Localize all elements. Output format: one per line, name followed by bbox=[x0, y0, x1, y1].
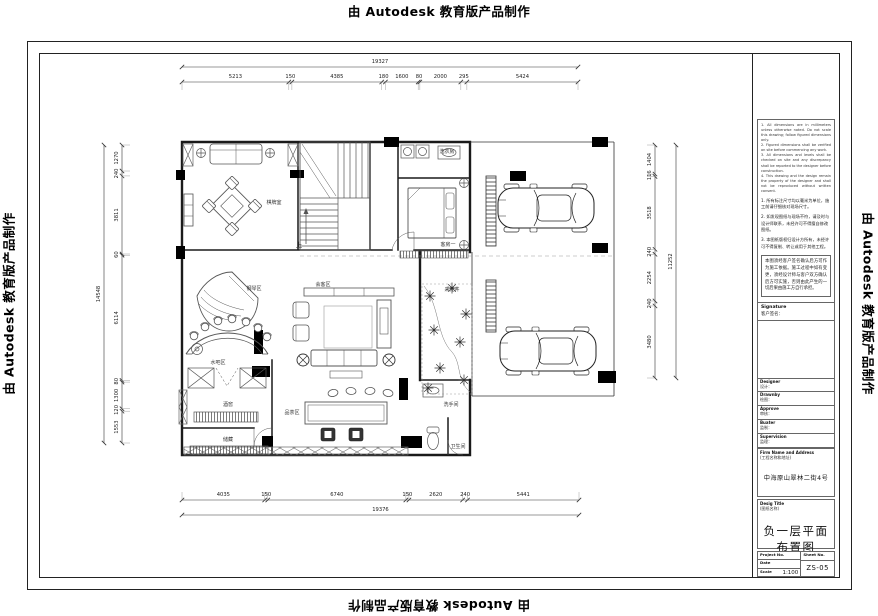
room-label-kefang: 客房一 bbox=[440, 241, 455, 248]
date-row: Date bbox=[758, 560, 800, 568]
field-buater-cn: 监制： bbox=[760, 426, 832, 431]
dim-label: 1404 bbox=[647, 152, 653, 166]
room-label-xiyifang: 洗衣房 bbox=[439, 148, 454, 155]
drawing-title: 负一层平面布置图 bbox=[760, 523, 832, 555]
dim-label: 14548 bbox=[96, 286, 102, 303]
dim-label: 150 bbox=[261, 492, 271, 498]
scale-value: 1:100 bbox=[782, 570, 798, 576]
dim-label: 150 bbox=[402, 492, 412, 498]
field-supervision-cn: 监理： bbox=[760, 440, 832, 445]
notes-box: 1. All dimensions are in millimeters unl… bbox=[757, 119, 835, 379]
dim-label: 1553 bbox=[114, 420, 120, 433]
dim-label: 19327 bbox=[372, 59, 389, 65]
dim-label: 60 bbox=[114, 251, 120, 258]
room-label-gangqin: 钢琴区 bbox=[246, 285, 261, 292]
field-designer: Designer 设计： bbox=[757, 378, 835, 392]
sheet-no-row: Sheet No. bbox=[801, 552, 834, 561]
dim-label: 5213 bbox=[229, 74, 242, 80]
room-label-caiguang: 采光井 bbox=[444, 286, 459, 293]
room-label-weishengjian: 卫生间 bbox=[450, 443, 465, 450]
dim-label: 150 bbox=[285, 74, 295, 80]
dim-label: 116 bbox=[647, 170, 653, 180]
room-label-up: 上 bbox=[296, 240, 303, 249]
dim-label: 1270 bbox=[114, 151, 120, 164]
field-designer-cn: 设计： bbox=[760, 385, 832, 390]
dim-label: 2254 bbox=[647, 270, 653, 284]
walls bbox=[182, 142, 470, 455]
guest-bedroom-furniture bbox=[392, 179, 469, 259]
signature-block: Signature 客户签名： bbox=[758, 302, 834, 321]
note-line-cn: 3. 本图纸版权归设计方所有，未经许可不得复制、转让或用于其他工程。 bbox=[761, 237, 831, 250]
note-line-en: 4. This drawing and the design remain th… bbox=[761, 174, 831, 194]
tea-area-furniture bbox=[305, 402, 387, 441]
field-drawnby-cn: 绘图： bbox=[760, 398, 832, 403]
dim-label: 2000 bbox=[434, 74, 447, 80]
firm-name-box: Firm Name and Address (工程名称和地址) 中海原山翠林二街… bbox=[757, 448, 835, 497]
confirmation-paragraph: 本图须经客户签名确认后方可作为施工依据。施工过程中如有变更，须经设计师与客户双方… bbox=[761, 255, 831, 297]
signature-label: Signature bbox=[761, 305, 831, 310]
dim-label: 240 bbox=[114, 169, 120, 179]
room-label-pincha: 品茶区 bbox=[284, 409, 299, 416]
room-label-jiujiao: 酒窖 bbox=[223, 401, 233, 408]
dim-label: 1300 bbox=[114, 389, 120, 402]
dim-label: 80 bbox=[416, 74, 423, 80]
dim-chain-left: 12702403811606114801300120155314548 bbox=[96, 143, 130, 445]
dim-label: 5441 bbox=[517, 492, 530, 498]
cad-sheet: { "watermark": "由 Autodesk 教育版产品制作", "pl… bbox=[0, 0, 878, 616]
note-line-cn: 2. 如发现图纸与现场不符，请及时与设计师联系，未经许可不得擅自修改图纸。 bbox=[761, 214, 831, 233]
dim-label: 2620 bbox=[429, 492, 442, 498]
notes-english: 1. All dimensions are in millimeters unl… bbox=[761, 123, 831, 194]
scale-row: Scale 1:100 bbox=[758, 569, 800, 576]
dim-label: 6740 bbox=[330, 492, 343, 498]
field-rows: Designer 设计： Drawnby 绘图： Approve 审核： Bua… bbox=[757, 378, 835, 448]
room-label-chucang: 储藏 bbox=[223, 436, 233, 443]
project-address: 中海原山翠林二街4号 bbox=[760, 473, 832, 482]
dim-label: 1600 bbox=[395, 74, 408, 80]
room-label-shuiba: 水吧区 bbox=[210, 359, 225, 366]
field-approve: Approve 审核： bbox=[757, 406, 835, 420]
project-no-row: Project No. bbox=[758, 552, 800, 560]
dim-chain-right: 140411635182402254240348011252 bbox=[647, 143, 678, 380]
dim-label: 11252 bbox=[668, 253, 674, 270]
dim-label: 240 bbox=[647, 299, 653, 309]
signature-cn-label: 客户签名： bbox=[761, 311, 831, 317]
sheet-number: ZS-05 bbox=[801, 561, 834, 576]
project-info-grid: Project No. Date Scale 1:100 Sheet No. Z… bbox=[757, 551, 835, 577]
floor-plan-drawing: 5213150438518016008020002955424193274035… bbox=[0, 0, 878, 616]
mahjong-room-furniture bbox=[184, 144, 275, 236]
dim-label: 180 bbox=[379, 74, 389, 80]
dim-label: 80 bbox=[114, 378, 120, 385]
title-block: 1. All dimensions are in millimeters unl… bbox=[752, 53, 839, 577]
room-label-xishoujian: 洗手间 bbox=[443, 401, 458, 408]
dim-label: 5424 bbox=[516, 74, 530, 80]
dim-label: 240 bbox=[647, 247, 653, 257]
dim-label: 3480 bbox=[647, 335, 653, 348]
field-buater: Buater 监制： bbox=[757, 420, 835, 434]
staircase bbox=[300, 142, 370, 250]
dim-chain-top: 521315043851801600802000295542419327 bbox=[180, 59, 580, 90]
dim-label: 4385 bbox=[330, 74, 343, 80]
dim-label: 295 bbox=[459, 74, 469, 80]
dim-label: 4035 bbox=[217, 492, 230, 498]
structural-columns bbox=[176, 137, 616, 448]
dim-label: 3518 bbox=[647, 206, 653, 219]
dim-chain-bottom: 403515067401502620240544119376 bbox=[180, 492, 581, 517]
room-label-huike: 会客区 bbox=[315, 281, 330, 288]
notes-chinese: 1. 所有标注尺寸均以毫米为单位，施工前请仔细核对现场尺寸。2. 如发现图纸与现… bbox=[761, 198, 831, 250]
field-supervision: Supervision 监理： bbox=[757, 434, 835, 448]
note-line-cn: 1. 所有标注尺寸均以毫米为单位，施工前请仔细核对现场尺寸。 bbox=[761, 198, 831, 211]
dim-label: 6114 bbox=[114, 311, 120, 325]
firm-label-cn: (工程名称和地址) bbox=[760, 456, 832, 461]
field-drawnby: Drawnby 绘图： bbox=[757, 392, 835, 406]
dim-label: 120 bbox=[114, 405, 120, 415]
note-line-en: 1. All dimensions are in millimeters unl… bbox=[761, 123, 831, 143]
parked-cars bbox=[498, 184, 596, 375]
light-well-plants bbox=[422, 283, 472, 395]
note-line-en: 3. All dimensions and levels shall be ch… bbox=[761, 153, 831, 173]
drawing-title-box: Desig Title (图纸名称) 负一层平面布置图 bbox=[757, 499, 835, 549]
living-area-furniture bbox=[293, 288, 395, 397]
room-label-qipai: 棋牌室 bbox=[266, 199, 281, 206]
dim-label: 19376 bbox=[372, 507, 389, 513]
wall-hatch bbox=[179, 144, 408, 455]
dim-label: 240 bbox=[460, 492, 470, 498]
note-line-en: 2. Figured dimensions shall be verified … bbox=[761, 143, 831, 153]
field-approve-cn: 审核： bbox=[760, 412, 832, 417]
dim-label: 3811 bbox=[114, 208, 120, 221]
desig-title-label-cn: (图纸名称) bbox=[760, 507, 832, 512]
